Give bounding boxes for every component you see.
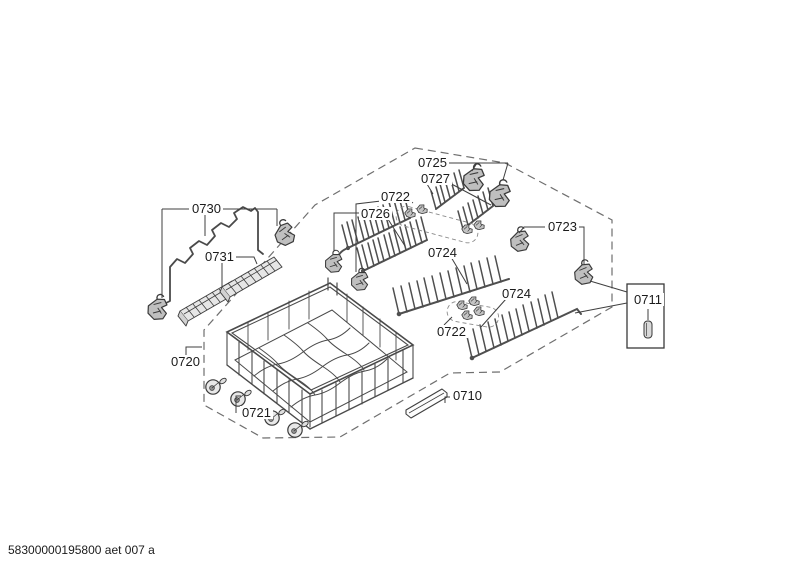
tine-row-0724-mid [393,256,509,316]
wheel-drawing [231,389,252,406]
clip-0722 [404,207,416,218]
clips-0722-top-group [394,203,485,245]
part-label-0722-top: 0722 [379,190,412,203]
clip-0722 [473,305,485,316]
doc-code: 58300000195800 aet 007 a [8,543,155,557]
clip-0723-a [510,226,530,252]
pin-0711-drawing [644,321,652,338]
diagram-canvas: 0730 0731 0720 0721 0726 0722 0725 0727 … [0,0,800,566]
part-label-0720: 0720 [169,355,202,368]
part-label-0722-bottom: 0722 [435,325,468,338]
part-label-0724-bottom: 0724 [500,287,533,300]
part-label-0727: 0727 [419,172,452,185]
part-label-0730: 0730 [190,202,223,215]
fold-rack-0730-left-support [146,292,170,321]
part-label-0731: 0731 [203,250,236,263]
part-label-0723: 0723 [546,220,579,233]
clip-0725-a [461,161,488,193]
plate-rack-0731-drawing [178,257,282,326]
part-label-0726: 0726 [359,207,392,220]
row-end-clip [350,267,370,292]
exploded-view-line-art [0,0,800,566]
part-label-0710: 0710 [451,389,484,402]
wheel-drawing [206,377,227,394]
part-label-0711: 0711 [632,293,664,306]
clip-0722 [416,203,428,214]
part-label-0721: 0721 [240,406,273,419]
clip-0722 [468,295,480,306]
wheel-drawing [288,420,309,437]
part-label-0724-mid: 0724 [426,246,459,259]
part-label-0725: 0725 [416,156,449,169]
clip-0722 [461,223,473,234]
clip-0722 [461,309,473,320]
strip-0710-drawing [406,389,447,418]
fold-rack-0730-handle [273,218,296,247]
clip-0722 [456,299,468,310]
